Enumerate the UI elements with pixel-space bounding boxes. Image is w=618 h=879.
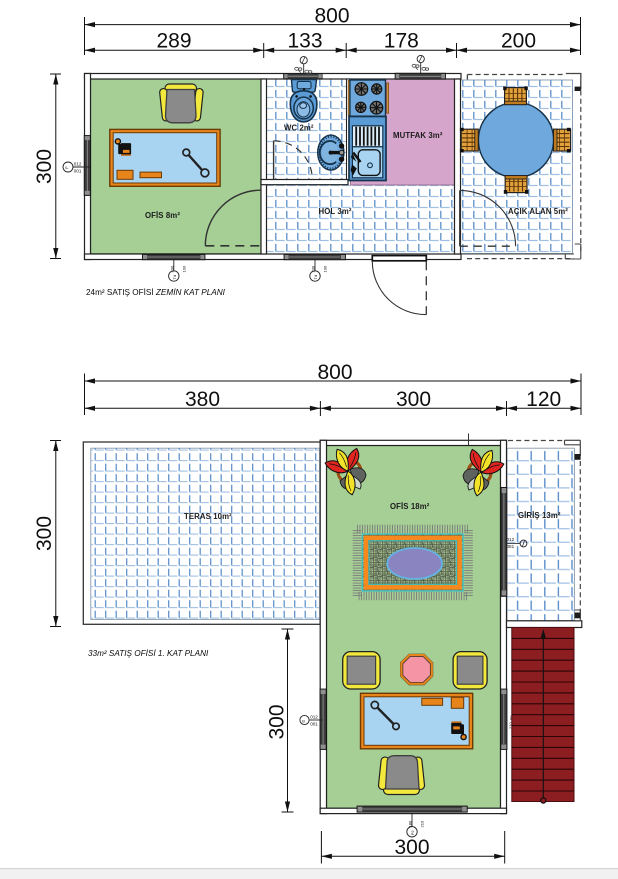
svg-text:24m² SATIŞ OFİSİ ZEMİN KAT PLA: 24m² SATIŞ OFİSİ ZEMİN KAT PLANI	[86, 287, 226, 297]
svg-text:HOL 3m²: HOL 3m²	[319, 207, 352, 216]
svg-text:012: 012	[74, 162, 82, 167]
svg-text:P2: P2	[410, 830, 415, 836]
svg-text:081: 081	[507, 544, 515, 549]
svg-text:800: 800	[317, 361, 352, 384]
svg-text:001: 001	[74, 169, 82, 174]
svg-text:GİRİŞ 13m²: GİRİŞ 13m²	[518, 511, 561, 520]
svg-text:300: 300	[266, 704, 289, 739]
svg-text:133: 133	[287, 30, 322, 53]
svg-text:001: 001	[310, 722, 318, 727]
svg-text:289: 289	[156, 30, 191, 53]
svg-text:300: 300	[33, 149, 56, 184]
svg-text:200: 200	[501, 30, 536, 53]
svg-text:300: 300	[394, 836, 429, 859]
svg-text:TERAS 10m²: TERAS 10m²	[184, 512, 232, 521]
svg-text:WC 2m²: WC 2m²	[284, 124, 314, 133]
svg-text:800: 800	[314, 5, 349, 28]
svg-text:120: 120	[526, 388, 561, 411]
svg-text:380: 380	[185, 388, 220, 411]
svg-text:33m² SATIŞ OFİSİ 1. KAT PLANI: 33m² SATIŞ OFİSİ 1. KAT PLANI	[88, 648, 209, 658]
svg-text:OFİS 8m²: OFİS 8m²	[145, 211, 180, 220]
svg-text:AÇIK ALAN 5m²: AÇIK ALAN 5m²	[508, 207, 568, 216]
svg-text:P: P	[64, 166, 69, 169]
svg-text:100: 100	[323, 265, 328, 272]
svg-text:100: 100	[182, 265, 187, 272]
svg-text:300: 300	[33, 516, 56, 551]
svg-text:OFİS 18m²: OFİS 18m²	[390, 502, 430, 511]
svg-text:Td: Td	[172, 275, 177, 280]
svg-text:B: B	[302, 718, 305, 723]
svg-text:012: 012	[310, 715, 318, 720]
svg-text:MUTFAK 3m²: MUTFAK 3m²	[393, 131, 443, 140]
svg-text:178: 178	[384, 30, 419, 53]
svg-text:012: 012	[507, 537, 515, 542]
svg-text:300: 300	[396, 388, 431, 411]
svg-text:Td: Td	[313, 275, 318, 280]
svg-text:210: 210	[420, 820, 425, 827]
